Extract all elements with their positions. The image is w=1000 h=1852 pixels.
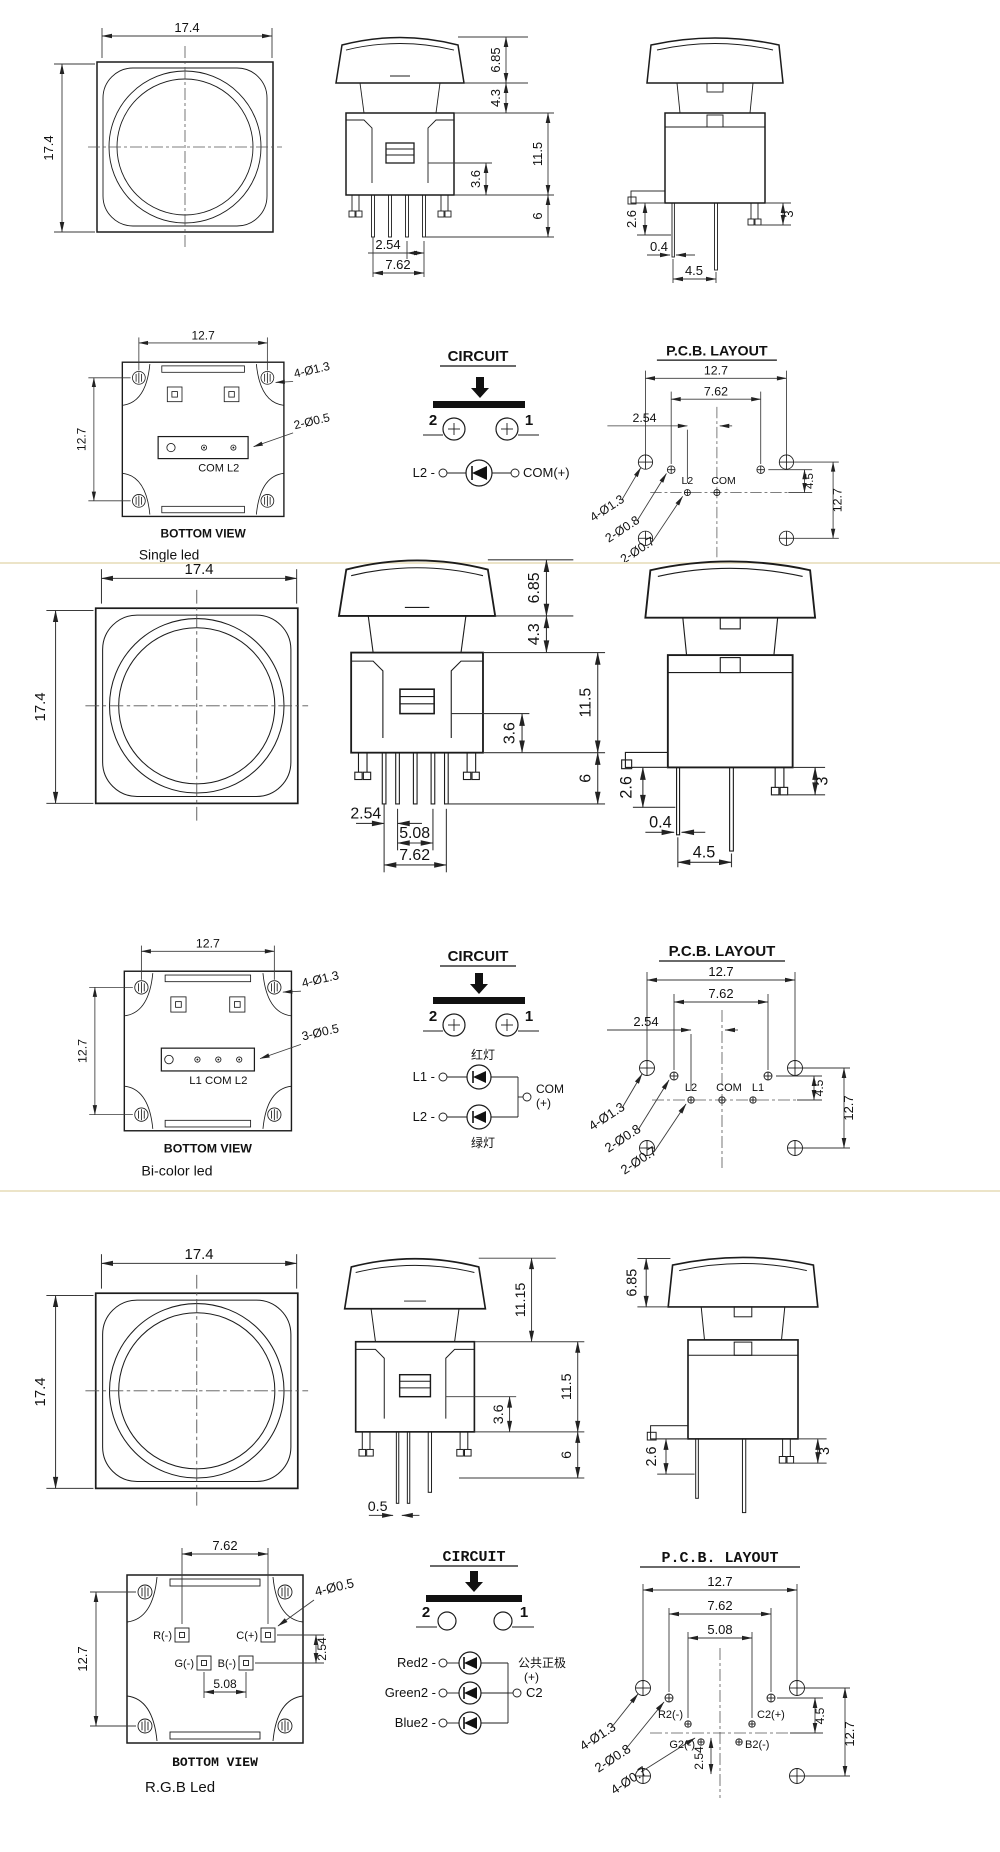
c2-label: C2 [526, 1685, 543, 1700]
button-face-drawing [46, 1254, 308, 1507]
dim-label: 5.08 [707, 1622, 732, 1637]
led-symbol [439, 460, 519, 486]
dim-label: 3 [781, 210, 796, 217]
bicolor-bottom-view: 12.7 12.7 L1 COM L2 4-Ø1.3 3-Ø0.5 BOTTOM… [70, 938, 360, 1183]
contact-pads [158, 387, 248, 459]
datasheet-page: 17.4 17.4 6.85 4.3 3.6 11.5 6 2.54 7.62 [0, 0, 1000, 1852]
bicolor-side-view: 2.6 0.4 4.5 3 [568, 545, 880, 880]
dim-label: 12.7 [192, 328, 216, 342]
dim-label: 7.62 [385, 257, 410, 272]
callout-corner-holes: 4-Ø1.3 [587, 492, 626, 524]
dim-label: 7.62 [399, 847, 430, 864]
callout-pin-holes: 2-Ø0.5 [292, 410, 331, 432]
callout-led-holes: 2-Ø0.7 [618, 1143, 660, 1177]
single-led-pcb-layout: P.C.B. LAYOUT 12.7 7.62 2.54 L2 COM 4-Ø1… [555, 340, 855, 567]
common-node [508, 1663, 521, 1723]
led-left-label: L2 - [413, 465, 435, 480]
pin-labels: COM L2 [198, 462, 239, 474]
rgb-front-elevation: 11.15 11.5 3.6 6 0.5 [305, 1245, 624, 1522]
callout-switch-holes: 2-Ø0.8 [592, 1741, 634, 1775]
dim-label: 4.5 [804, 473, 816, 489]
section-name: Bi-color led [141, 1163, 212, 1179]
dim-label: 6.85 [488, 47, 503, 72]
dim-label: 4.5 [685, 263, 703, 278]
dim-label: 12.7 [196, 936, 220, 950]
bottom-shell-drawing [122, 362, 284, 516]
green-led-label: 绿灯 [471, 1135, 495, 1150]
led2-symbol [439, 1105, 518, 1129]
circuit-title: CIRCUIT [448, 348, 509, 365]
dim-label: 2.54 [633, 1014, 658, 1029]
callout-pin-holes: 3-Ø0.5 [300, 1021, 340, 1043]
pins [382, 753, 448, 804]
dim-label: 2.6 [618, 776, 636, 799]
led1-label: L1 - [413, 1069, 435, 1084]
pad-label-com: COM [711, 476, 735, 487]
led-green-symbol [439, 1682, 508, 1704]
dim-label: 6 [530, 212, 545, 219]
pad-label-r2: R2(-) [658, 1709, 683, 1721]
callout-corner-holes: 4-Ø1.3 [292, 359, 331, 381]
bottom-shell-drawing [124, 971, 291, 1131]
terminal-2-label: 2 [422, 1604, 430, 1621]
dim-label: 12.7 [831, 488, 845, 512]
dim-label: 12.7 [842, 1721, 857, 1746]
pin-labels: L1 COM L2 [189, 1075, 247, 1087]
callout-switch-holes: 2-Ø0.8 [603, 513, 642, 545]
button-body-drawing [339, 560, 495, 779]
dim-label: 12.7 [708, 964, 733, 979]
dim-label: 12.7 [75, 1646, 90, 1671]
dim-label: 2.54 [632, 411, 656, 425]
dim-label: 17.4 [32, 692, 49, 721]
pcb-title: P.C.B. LAYOUT [661, 1550, 778, 1567]
callout-switch-holes: 2-Ø0.8 [602, 1121, 644, 1155]
bottom-view-caption: BOTTOM VIEW [161, 527, 247, 541]
dim-label: 12.7 [704, 363, 728, 377]
dim-label: 2.54 [692, 1746, 706, 1770]
dim-label: 11.5 [530, 142, 545, 166]
dim-label: 7.62 [212, 1538, 237, 1553]
led1-symbol [439, 1065, 518, 1089]
pcb-title: P.C.B. LAYOUT [666, 343, 768, 359]
dim-label: 17.4 [41, 135, 56, 160]
callout-corner-holes: 4-Ø1.3 [300, 968, 340, 990]
led2-label: L2 - [413, 1109, 435, 1124]
right-dimensions [776, 1068, 844, 1148]
terminal-1-label: 1 [525, 412, 533, 429]
dim-label: 12.7 [75, 1039, 89, 1063]
button-body-drawing [336, 38, 464, 218]
pads [636, 1681, 851, 1784]
circuit-title: CIRCUIT [448, 948, 509, 965]
dim-label: 2.54 [350, 806, 381, 823]
switch-symbol [423, 973, 539, 1036]
dim-label: 17.4 [32, 1377, 49, 1406]
terminal-1-label: 1 [520, 1604, 528, 1621]
dim-label: 4.5 [693, 843, 716, 861]
pcb-title: P.C.B. LAYOUT [669, 943, 776, 960]
pads [638, 455, 838, 545]
dim-label: 11.5 [559, 1373, 575, 1400]
dim-label: 2.6 [624, 210, 639, 228]
dim-label: 5.08 [399, 825, 430, 842]
dim-label: 11.15 [513, 1283, 529, 1318]
dim-label: 5.08 [213, 1677, 237, 1691]
callout-corner-holes: 4-Ø1.3 [577, 1719, 619, 1753]
pad-label-l2: L2 [685, 1082, 697, 1094]
pad-label-l1: L1 [752, 1082, 764, 1094]
dim-label: 0.5 [368, 1499, 388, 1515]
dim-label: 7.62 [704, 384, 728, 398]
dim-label: 3.6 [468, 170, 483, 188]
dim-label: 17.4 [185, 1246, 214, 1263]
dim-label: 6.85 [526, 572, 543, 603]
pad-label-l2: L2 [682, 476, 694, 487]
button-face-drawing [46, 569, 308, 822]
dim-label: 4.3 [488, 89, 503, 107]
callout-leaders [278, 1600, 314, 1626]
dim-label: 17.4 [185, 561, 214, 578]
dim-label: 4.5 [812, 1079, 826, 1096]
section-name: R.G.B Led [145, 1779, 215, 1796]
pad-label-r: R(-) [153, 1630, 172, 1642]
dim-label: 3.6 [491, 1404, 507, 1424]
led-red-symbol [439, 1652, 508, 1674]
red-led-label: 红灯 [471, 1047, 495, 1062]
dim-label: 6 [559, 1451, 575, 1459]
dim-label: 12.7 [841, 1095, 856, 1120]
led-blue-symbol [439, 1712, 508, 1734]
dim-label: 12.7 [707, 1574, 732, 1589]
rgb-bottom-view: 7.62 12.7 R(-) C(+) G(-) B(-) 5.08 2.54 … [70, 1540, 375, 1798]
right-dimensions [777, 1688, 845, 1776]
plus-label: (+) [524, 1670, 539, 1684]
dimension-lines [369, 1258, 584, 1515]
pad-label-g: G(-) [174, 1658, 194, 1670]
pins [396, 1432, 431, 1503]
dim-label: 6.85 [624, 1269, 640, 1297]
dim-label: 2.54 [315, 1637, 329, 1661]
dim-label: 0.4 [649, 813, 672, 831]
single-led-side-view: 2.6 0.4 4.5 3 [585, 25, 835, 293]
pad-label-b: B(-) [218, 1658, 236, 1670]
single-led-bottom-view: 12.7 12.7 COM L2 4-Ø1.3 2-Ø0.5 BOTTOM VI… [70, 330, 350, 567]
button-body-drawing [345, 1259, 486, 1456]
green-label: Green2 - [385, 1685, 436, 1700]
right-dimensions [768, 462, 833, 538]
dim-label: 7.62 [708, 986, 733, 1001]
dim-label: 4.3 [526, 623, 543, 645]
callout-leaders [254, 381, 293, 446]
callout-corner-holes: 4-Ø1.3 [586, 1099, 628, 1133]
section-divider [0, 1190, 1000, 1192]
dim-label: 17.4 [174, 20, 199, 35]
dim-label: 3 [814, 777, 832, 786]
dim-label: 7.62 [707, 1598, 732, 1613]
button-face-drawing [54, 28, 282, 248]
common-node [518, 1077, 531, 1117]
single-led-front-elevation: 6.85 4.3 3.6 11.5 6 2.54 7.62 [300, 25, 590, 287]
pad-label-c2: C2(+) [757, 1709, 785, 1721]
dim-label: 2.6 [644, 1447, 660, 1467]
dim-label: 4.5 [813, 1707, 827, 1724]
circuit-title: CIRCUIT [442, 1549, 505, 1566]
terminal-2-label: 2 [429, 412, 437, 429]
switch-symbol [423, 377, 539, 440]
pad-label-com: COM [716, 1082, 742, 1094]
dim-label: 12.7 [75, 427, 89, 451]
callout-leaders [260, 991, 301, 1058]
bicolor-pcb-layout: P.C.B. LAYOUT 12.7 7.62 2.54 L2 COM L1 4… [552, 940, 867, 1178]
terminal-1-label: 1 [525, 1008, 533, 1025]
dim-label: 3 [817, 1447, 833, 1455]
red-label: Red2 - [397, 1655, 436, 1670]
blue-label: Blue2 - [395, 1715, 436, 1730]
dim-label: 2.54 [375, 237, 400, 252]
dim-label: 3.6 [502, 722, 519, 744]
terminal-2-label: 2 [429, 1008, 437, 1025]
plus-label: (+) [536, 1096, 551, 1110]
contact-pads [161, 997, 254, 1071]
pad-label-b2: B2(-) [745, 1739, 769, 1751]
bottom-view-caption: BOTTOM VIEW [164, 1142, 252, 1156]
pad-label-c: C(+) [236, 1630, 258, 1642]
switch-symbol [416, 1571, 534, 1630]
rgb-pcb-layout: P.C.B. LAYOUT 12.7 7.62 5.08 R2(-) C2(+)… [545, 1548, 875, 1813]
pads [640, 1061, 851, 1156]
rgb-side-view: 6.85 2.6 3 [600, 1243, 875, 1538]
single-led-front-view: 17.4 17.4 [40, 20, 340, 270]
bottom-view-caption: BOTTOM VIEW [172, 1755, 258, 1770]
dim-label: 0.4 [650, 239, 668, 254]
bottom-shell-drawing [127, 1575, 303, 1743]
pins [372, 195, 426, 237]
